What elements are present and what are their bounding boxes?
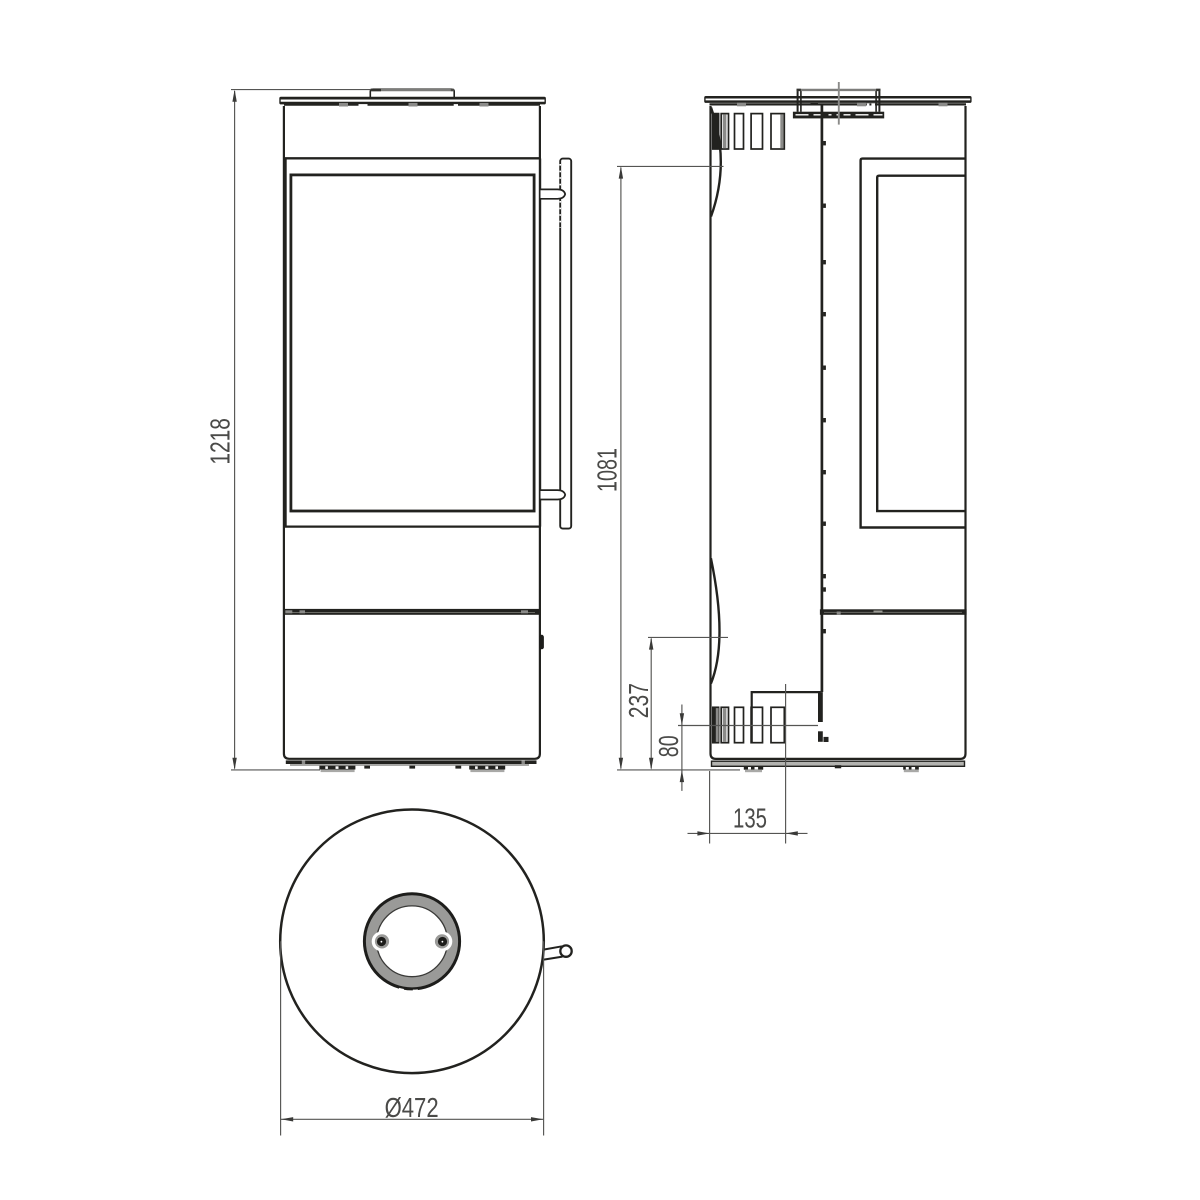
svg-text:237: 237 — [623, 683, 654, 718]
svg-text:1218: 1218 — [205, 418, 236, 465]
svg-text:80: 80 — [653, 735, 684, 757]
svg-text:Ø472: Ø472 — [385, 1092, 439, 1123]
svg-text:135: 135 — [733, 802, 767, 833]
svg-text:1081: 1081 — [591, 448, 622, 492]
